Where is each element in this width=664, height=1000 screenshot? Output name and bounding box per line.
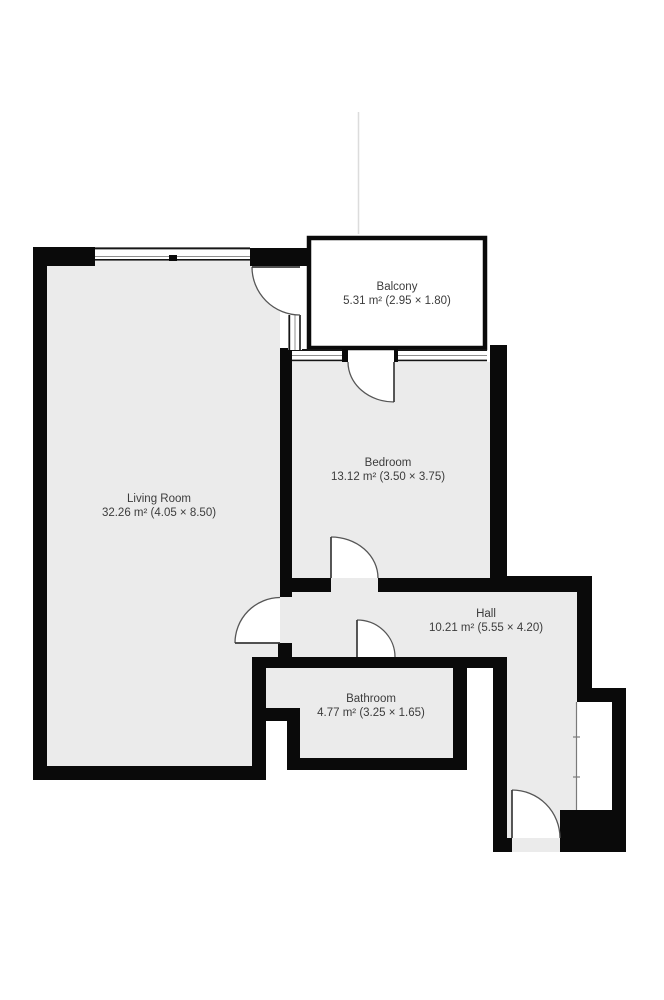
wall-bedroom-bottom-right [378,578,490,592]
wall-corridor-left [493,657,507,852]
room-label-bathroom: Bathroom 4.77 m² (3.25 × 1.65) [317,692,425,720]
window-living-side [288,315,302,350]
wall-left-outer [33,247,47,780]
wall-living-bottom [33,766,266,780]
wall-bathroom-top [266,657,507,668]
room-area: 4.77 m² (3.25 × 1.65) [317,706,425,720]
wall-niche-right [612,688,626,830]
room-label-balcony: Balcony 5.31 m² (2.95 × 1.80) [343,280,451,308]
room-area: 13.12 m² (3.50 × 3.75) [331,470,445,484]
room-name: Hall [429,607,543,621]
wall-hall-top [506,576,592,592]
wall-top-right [250,248,307,266]
window-mullion [169,255,177,261]
room-label-living-room: Living Room 32.26 m² (4.05 × 8.50) [102,492,216,520]
window-bedroom-left [292,349,342,362]
threshold [278,597,292,643]
room-name: Bathroom [317,692,425,706]
room-name: Balcony [343,280,451,294]
floorplan: Living Room 32.26 m² (4.05 × 8.50) Bedro… [0,0,664,1000]
room-area: 10.21 m² (5.55 × 4.20) [429,621,543,635]
room-name: Living Room [102,492,216,506]
wall-bathroom-step [252,708,300,721]
room-label-bedroom: Bedroom 13.12 m² (3.50 × 3.75) [331,456,445,484]
room-name: Bedroom [331,456,445,470]
wall-bathroom-right [453,657,467,770]
floorplan-svg [0,0,664,1000]
wall-door-stub [278,643,292,657]
wall-right-outer [577,592,592,702]
room-area: 32.26 m² (4.05 × 8.50) [102,506,216,520]
wall-living-bedroom-divider [280,348,292,597]
wall-bathroom-bottom [287,758,467,770]
wall-bedroom-right [490,345,507,592]
wall-top-left [33,247,95,266]
void-notch [266,721,287,780]
wall-entry-right [560,810,626,852]
window-bedroom-right [398,349,487,362]
room-area: 5.31 m² (2.95 × 1.80) [343,294,451,308]
wall-bedroom-bottom-left [292,578,331,592]
window-living-top [95,247,250,261]
threshold [512,838,560,852]
threshold [331,578,378,592]
wall-entry-left-jamb [493,838,512,852]
room-label-hall: Hall 10.21 m² (5.55 × 4.20) [429,607,543,635]
